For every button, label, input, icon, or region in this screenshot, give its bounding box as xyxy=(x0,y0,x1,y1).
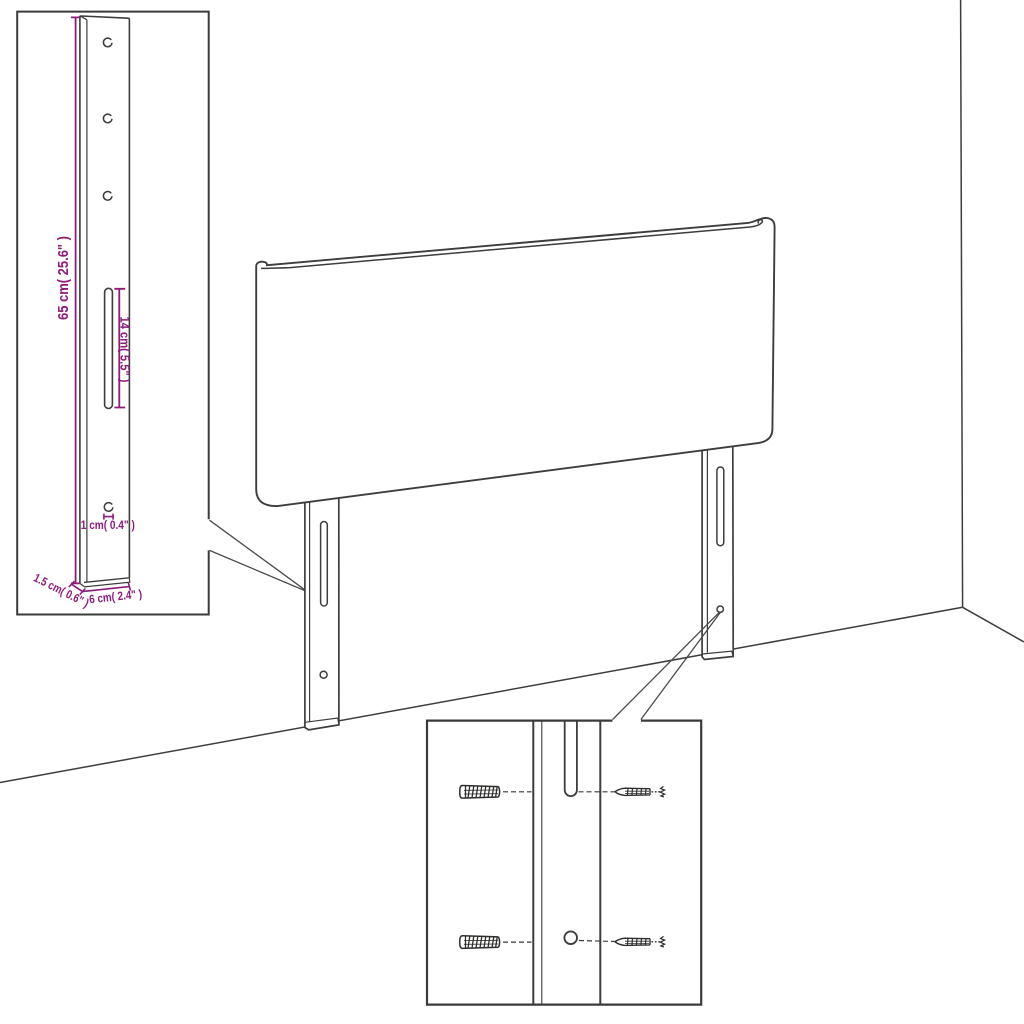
svg-text:14 cm( 5.5" ): 14 cm( 5.5" ) xyxy=(118,317,133,383)
svg-text:1 cm( 0.4" ): 1 cm( 0.4" ) xyxy=(81,518,135,532)
svg-text:65 cm( 25.6" ): 65 cm( 25.6" ) xyxy=(55,236,72,320)
